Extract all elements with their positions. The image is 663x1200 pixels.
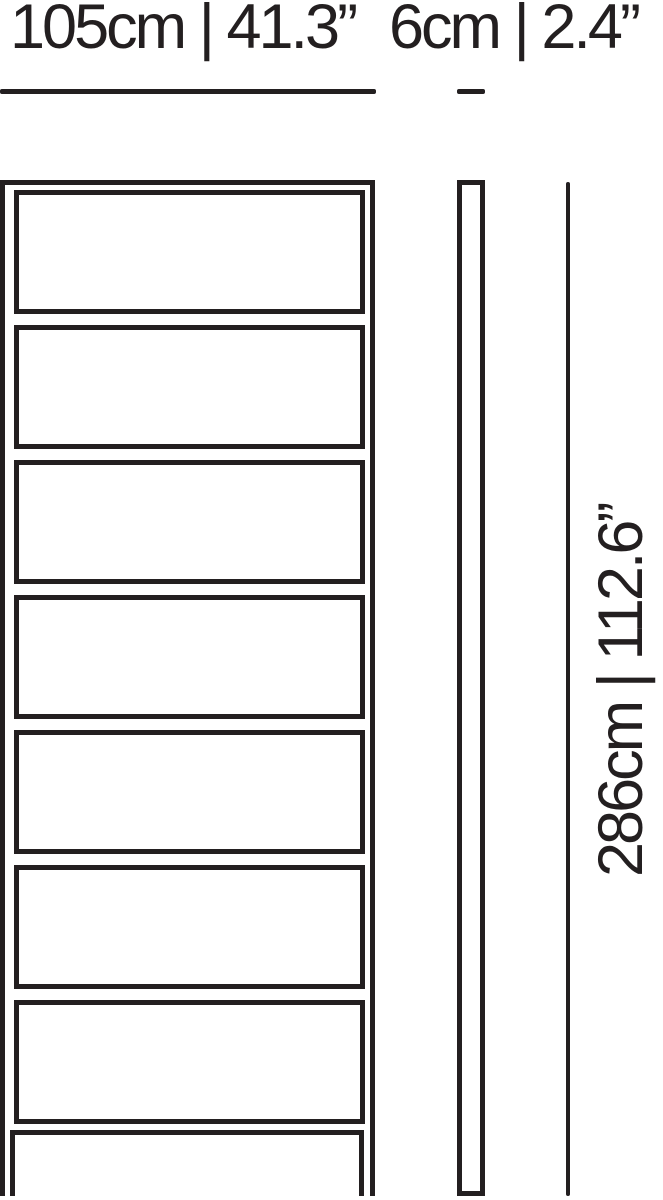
width-dimension-line [0, 89, 376, 94]
shelf-compartment [14, 460, 365, 584]
height-dimension-label: 286cm | 112.6” [590, 505, 653, 877]
depth-dimension-label: 6cm | 2.4” [389, 0, 638, 59]
shelf-compartment [14, 730, 365, 854]
shelf-compartment [14, 190, 365, 314]
shelf-compartment [14, 325, 365, 449]
depth-dimension-line [457, 89, 485, 94]
shelf-compartment [14, 865, 365, 989]
width-dimension-label: 105cm | 41.3” [10, 0, 355, 59]
shelf-side-view [457, 180, 485, 1196]
dimension-diagram: 105cm | 41.3” 6cm | 2.4” 286cm | 112.6” [0, 0, 663, 1200]
shelf-compartment [14, 1000, 365, 1124]
shelf-bottom-rail-and-legs [10, 1130, 364, 1196]
height-dimension-line [566, 182, 570, 1196]
shelf-compartment [14, 595, 365, 719]
